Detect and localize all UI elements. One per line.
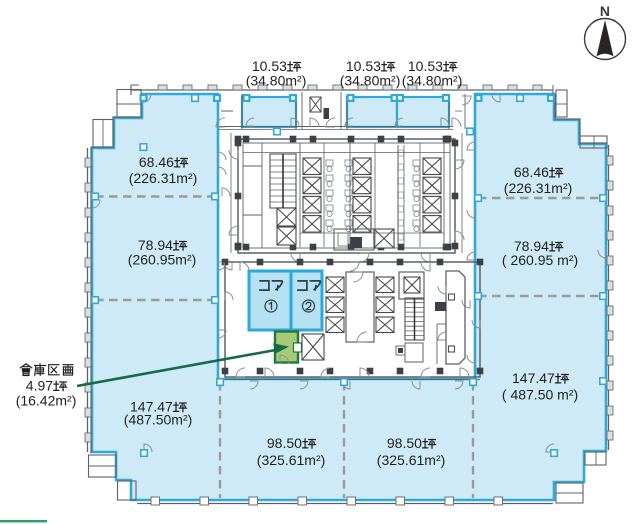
svg-text:(16.42m²): (16.42m²) (16, 393, 77, 409)
svg-text:4.97: 4.97 (26, 378, 53, 394)
svg-text:(34.80m²): (34.80m²) (246, 73, 307, 89)
svg-text:(260.95m²): (260.95m²) (128, 252, 196, 268)
svg-text:(34.80m²): (34.80m²) (402, 73, 463, 89)
svg-text:( 260.95 m²): ( 260.95 m²) (502, 252, 578, 268)
svg-text:(325.61m²): (325.61m²) (257, 452, 325, 468)
svg-text:68.46: 68.46 (514, 164, 549, 180)
svg-text:(487.50m²): (487.50m²) (124, 412, 192, 428)
svg-text:(325.61m²): (325.61m²) (377, 452, 445, 468)
svg-text:(226.31m²): (226.31m²) (504, 180, 572, 196)
svg-text:68.46: 68.46 (139, 154, 174, 170)
svg-text:(226.31m²): (226.31m²) (129, 170, 197, 186)
svg-text:147.47: 147.47 (512, 370, 555, 386)
svg-text:98.50: 98.50 (387, 435, 422, 451)
svg-text:( 487.50 m²): ( 487.50 m²) (502, 387, 578, 403)
svg-text:98.50: 98.50 (267, 435, 302, 451)
svg-text:(34.80m²): (34.80m²) (340, 73, 401, 89)
svg-text:N: N (600, 3, 610, 19)
